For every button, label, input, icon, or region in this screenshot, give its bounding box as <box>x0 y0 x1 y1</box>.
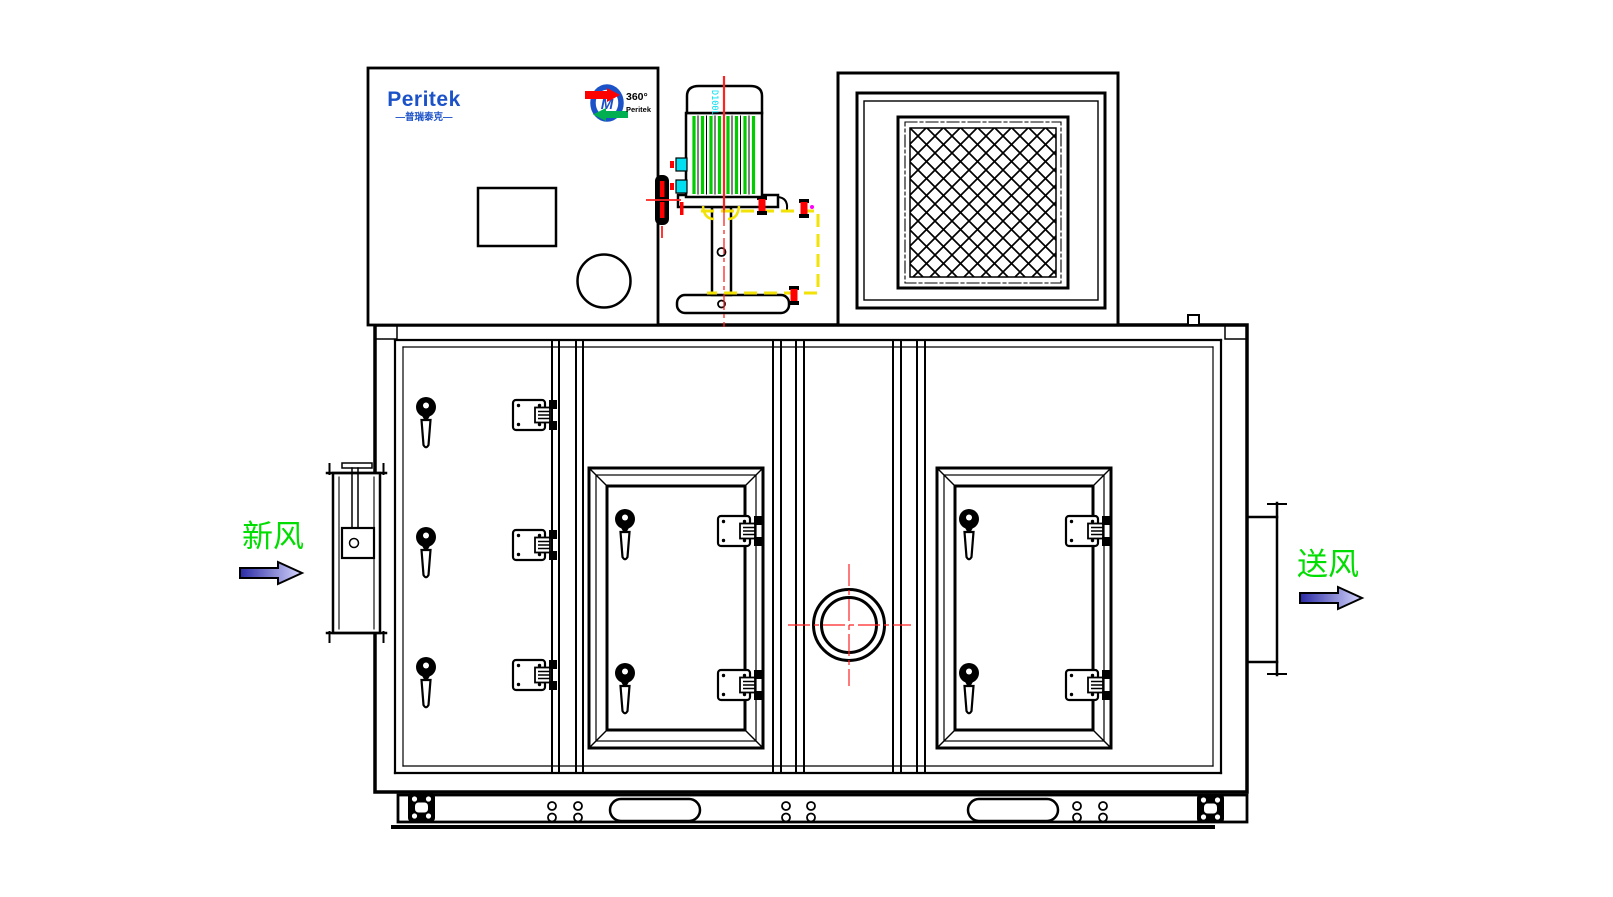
panel-latch-icon <box>513 530 557 560</box>
peritek-logo-text: Peritek <box>387 88 461 111</box>
cabinet-body <box>375 315 1247 792</box>
base-slot-right <box>968 799 1058 821</box>
supply-air-annotation: 送风 <box>1297 547 1362 609</box>
supply-air-arrow-icon <box>1300 587 1362 609</box>
motor-assembly: D100L <box>646 76 818 327</box>
lifting-lug-right <box>1188 315 1199 325</box>
diamond-mesh-filter-icon <box>910 128 1056 277</box>
base-rail <box>398 795 1247 822</box>
door-handle-icon <box>416 657 436 707</box>
door-latch-icon <box>718 516 762 546</box>
foot-bracket-right <box>1197 794 1224 823</box>
motor-model-label: D100L <box>709 90 719 116</box>
door-latch-icon <box>718 670 762 700</box>
cabinet-outline <box>375 325 1247 792</box>
cabinet-inner-frame <box>377 327 1245 773</box>
control-box-port <box>578 255 631 308</box>
dehumidifier-elevation-drawing: Peritek —普瑞泰克— M 360° Peritek <box>0 0 1613 897</box>
left-access-panel-hardware <box>416 397 557 707</box>
red-bolt <box>757 196 767 215</box>
fresh-air-inlet-flange <box>327 463 386 642</box>
fresh-air-annotation: 新风 <box>240 519 304 584</box>
badge-name-text: Peritek <box>626 105 652 114</box>
motor-side-clips <box>670 158 687 193</box>
door-outline <box>937 468 1111 748</box>
foot-bracket-left <box>408 793 435 822</box>
base-slot-left <box>610 799 700 821</box>
fresh-air-label: 新风 <box>242 519 304 555</box>
peritek-logo-subtext: —普瑞泰克— <box>395 111 453 123</box>
control-panel-window <box>478 188 556 246</box>
base-plate-hook <box>778 197 787 209</box>
peritek-logo: Peritek —普瑞泰克— <box>387 88 461 123</box>
panel-latch-icon <box>513 400 557 430</box>
badge-degree-text: 360° <box>626 91 648 103</box>
door-outline <box>589 468 763 748</box>
magenta-marker <box>810 205 814 209</box>
supply-air-outlet-flange <box>1247 503 1286 675</box>
right-access-door <box>937 468 1111 748</box>
door-handle-icon <box>416 527 436 577</box>
base-frame <box>393 793 1247 827</box>
door-handle-icon <box>416 397 436 447</box>
panel-latch-icon <box>513 660 557 690</box>
supply-air-label: 送风 <box>1297 547 1359 583</box>
red-bolt <box>789 286 799 305</box>
motor-skid <box>677 295 789 313</box>
middle-access-door <box>589 468 763 748</box>
damper-handle-bar <box>342 463 372 468</box>
actuator-shaft-hole <box>350 539 359 548</box>
door-latch-icon <box>1066 670 1110 700</box>
intake-grille-box <box>838 73 1118 325</box>
drawing-canvas: Peritek —普瑞泰克— M 360° Peritek <box>0 0 1613 897</box>
fresh-air-arrow-icon <box>240 562 302 584</box>
control-cabinet-box: Peritek —普瑞泰克— M 360° Peritek <box>368 68 658 325</box>
red-bolt <box>799 199 809 218</box>
door-latch-icon <box>1066 516 1110 546</box>
